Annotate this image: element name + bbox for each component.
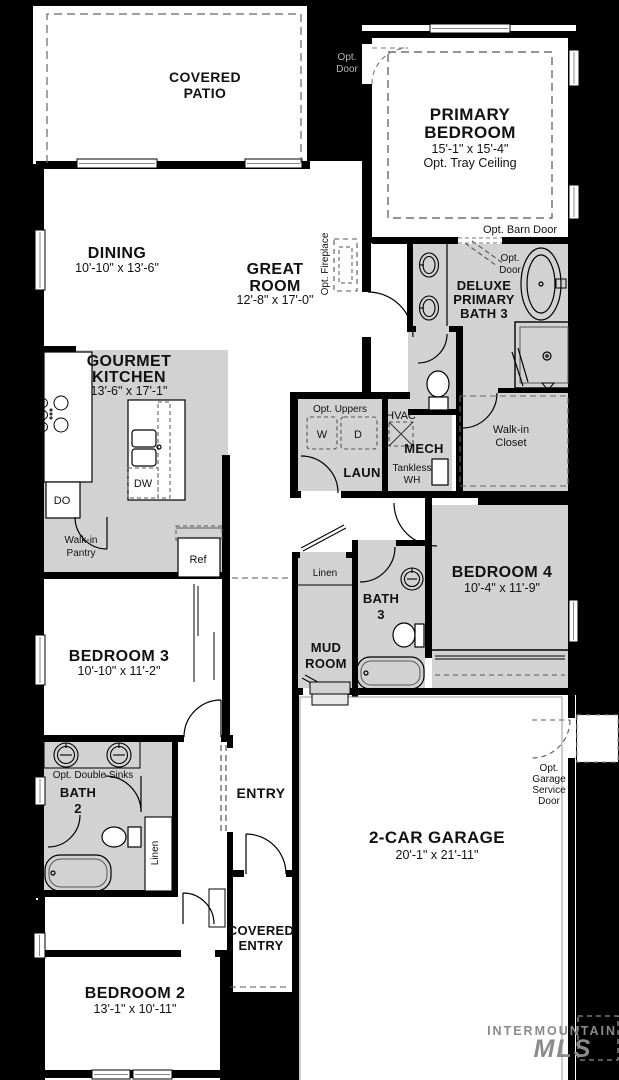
label-primary-bath-3: BATH 3 xyxy=(460,306,508,321)
label-double-oven: DO xyxy=(54,495,71,507)
label-garage: 2-CAR GARAGE xyxy=(369,828,505,847)
tankless-wh-box xyxy=(432,459,448,485)
label-covered-patio: COVERED xyxy=(169,69,241,85)
label-opt-garage-service-2: Garage xyxy=(532,774,566,785)
label-tankless-2: WH xyxy=(404,475,421,486)
label-opt-door-bath: Opt. xyxy=(501,253,520,264)
label-primary-bedroom-dims: 15'-1" x 15'-4" xyxy=(432,142,509,156)
label-kitchen: GOURMET xyxy=(87,353,172,370)
entry-stoop xyxy=(209,889,225,927)
label-mud-room: MUD xyxy=(311,640,342,655)
label-washer: W xyxy=(317,429,328,441)
label-dining: DINING xyxy=(88,245,146,262)
label-covered-entry-2: ENTRY xyxy=(238,938,283,953)
label-covered-patio-2: PATIO xyxy=(184,85,227,101)
label-mud-room-2: ROOM xyxy=(305,656,347,671)
label-opt-uppers: Opt. Uppers xyxy=(313,404,367,415)
label-walk-in-closet: Walk-in xyxy=(493,424,529,436)
label-primary-bedroom-2: BEDROOM xyxy=(424,123,516,142)
bath2-toilet xyxy=(102,827,141,847)
label-opt-fireplace: Opt. Fireplace xyxy=(320,232,331,295)
label-opt-door-patio: Opt. xyxy=(338,52,357,63)
label-opt-double-sinks: Opt. Double Sinks xyxy=(53,770,134,781)
label-linen-hall: Linen xyxy=(313,568,337,579)
label-bedroom3: BEDROOM 3 xyxy=(69,648,170,665)
label-bedroom4: BEDROOM 4 xyxy=(452,564,553,581)
label-pantry: Walk-in xyxy=(65,535,98,546)
label-tankless: Tankless xyxy=(393,463,432,474)
label-bedroom4-dims: 10'-4" x 11'-9" xyxy=(464,581,540,595)
label-primary-bedroom: PRIMARY xyxy=(430,105,511,124)
label-covered-entry: COVERED xyxy=(228,923,294,938)
label-opt-garage-service: Opt. xyxy=(540,763,559,774)
label-opt-garage-service-4: Door xyxy=(538,796,560,807)
label-mech: MECH xyxy=(404,441,443,456)
label-entry: ENTRY xyxy=(237,785,286,801)
floor-plan: COVERED PATIO PRIMARY BEDROOM 15'-1" x 1… xyxy=(0,0,619,1080)
label-opt-garage-service-3: Service xyxy=(532,785,566,796)
bath3-toilet xyxy=(393,623,424,647)
label-dryer: D xyxy=(354,429,362,441)
label-pantry-2: Pantry xyxy=(67,548,96,559)
primary-toilet xyxy=(427,371,449,410)
watermark-mls: MLS xyxy=(534,1035,593,1063)
label-kitchen-dims: 13'-6" x 17'-1" xyxy=(91,384,168,398)
label-bath3: BATH xyxy=(363,591,399,606)
label-great-room: GREAT xyxy=(247,261,304,278)
service-landing xyxy=(577,715,618,762)
label-dishwasher: DW xyxy=(134,478,153,490)
label-great-room-dims: 12'-8" x 17'-0" xyxy=(237,293,314,307)
label-bath3-2: 3 xyxy=(377,607,385,622)
label-garage-dims: 20'-1" x 21'-11" xyxy=(396,848,479,862)
label-walk-in-closet-2: Closet xyxy=(495,437,526,449)
label-bedroom3-dims: 10'-10" x 11'-2" xyxy=(78,664,161,678)
label-opt-door-patio-2: Door xyxy=(336,64,358,75)
label-linen-entry: Linen xyxy=(150,841,161,865)
label-bath2: BATH xyxy=(60,785,96,800)
label-fridge: Ref xyxy=(189,554,207,566)
label-opt-barn-door: Opt. Barn Door xyxy=(483,224,557,236)
label-hvac: HVAC xyxy=(386,410,416,422)
bedroom4-floor xyxy=(432,505,576,692)
label-bedroom2: BEDROOM 2 xyxy=(85,985,186,1002)
label-primary-bath: DELUXE xyxy=(457,278,512,293)
label-bath2-2: 2 xyxy=(74,801,82,816)
label-bedroom2-dims: 13'-1" x 10'-11" xyxy=(94,1002,177,1016)
label-opt-tray-ceiling: Opt. Tray Ceiling xyxy=(423,156,516,170)
garage-step xyxy=(310,682,350,694)
label-opt-door-bath-2: Door xyxy=(499,265,521,276)
label-laun: LAUN xyxy=(343,465,380,480)
bath3-sink xyxy=(401,568,423,590)
label-dining-dims: 10'-10" x 13'-6" xyxy=(75,261,159,275)
label-primary-bath-2: PRIMARY xyxy=(453,292,515,307)
